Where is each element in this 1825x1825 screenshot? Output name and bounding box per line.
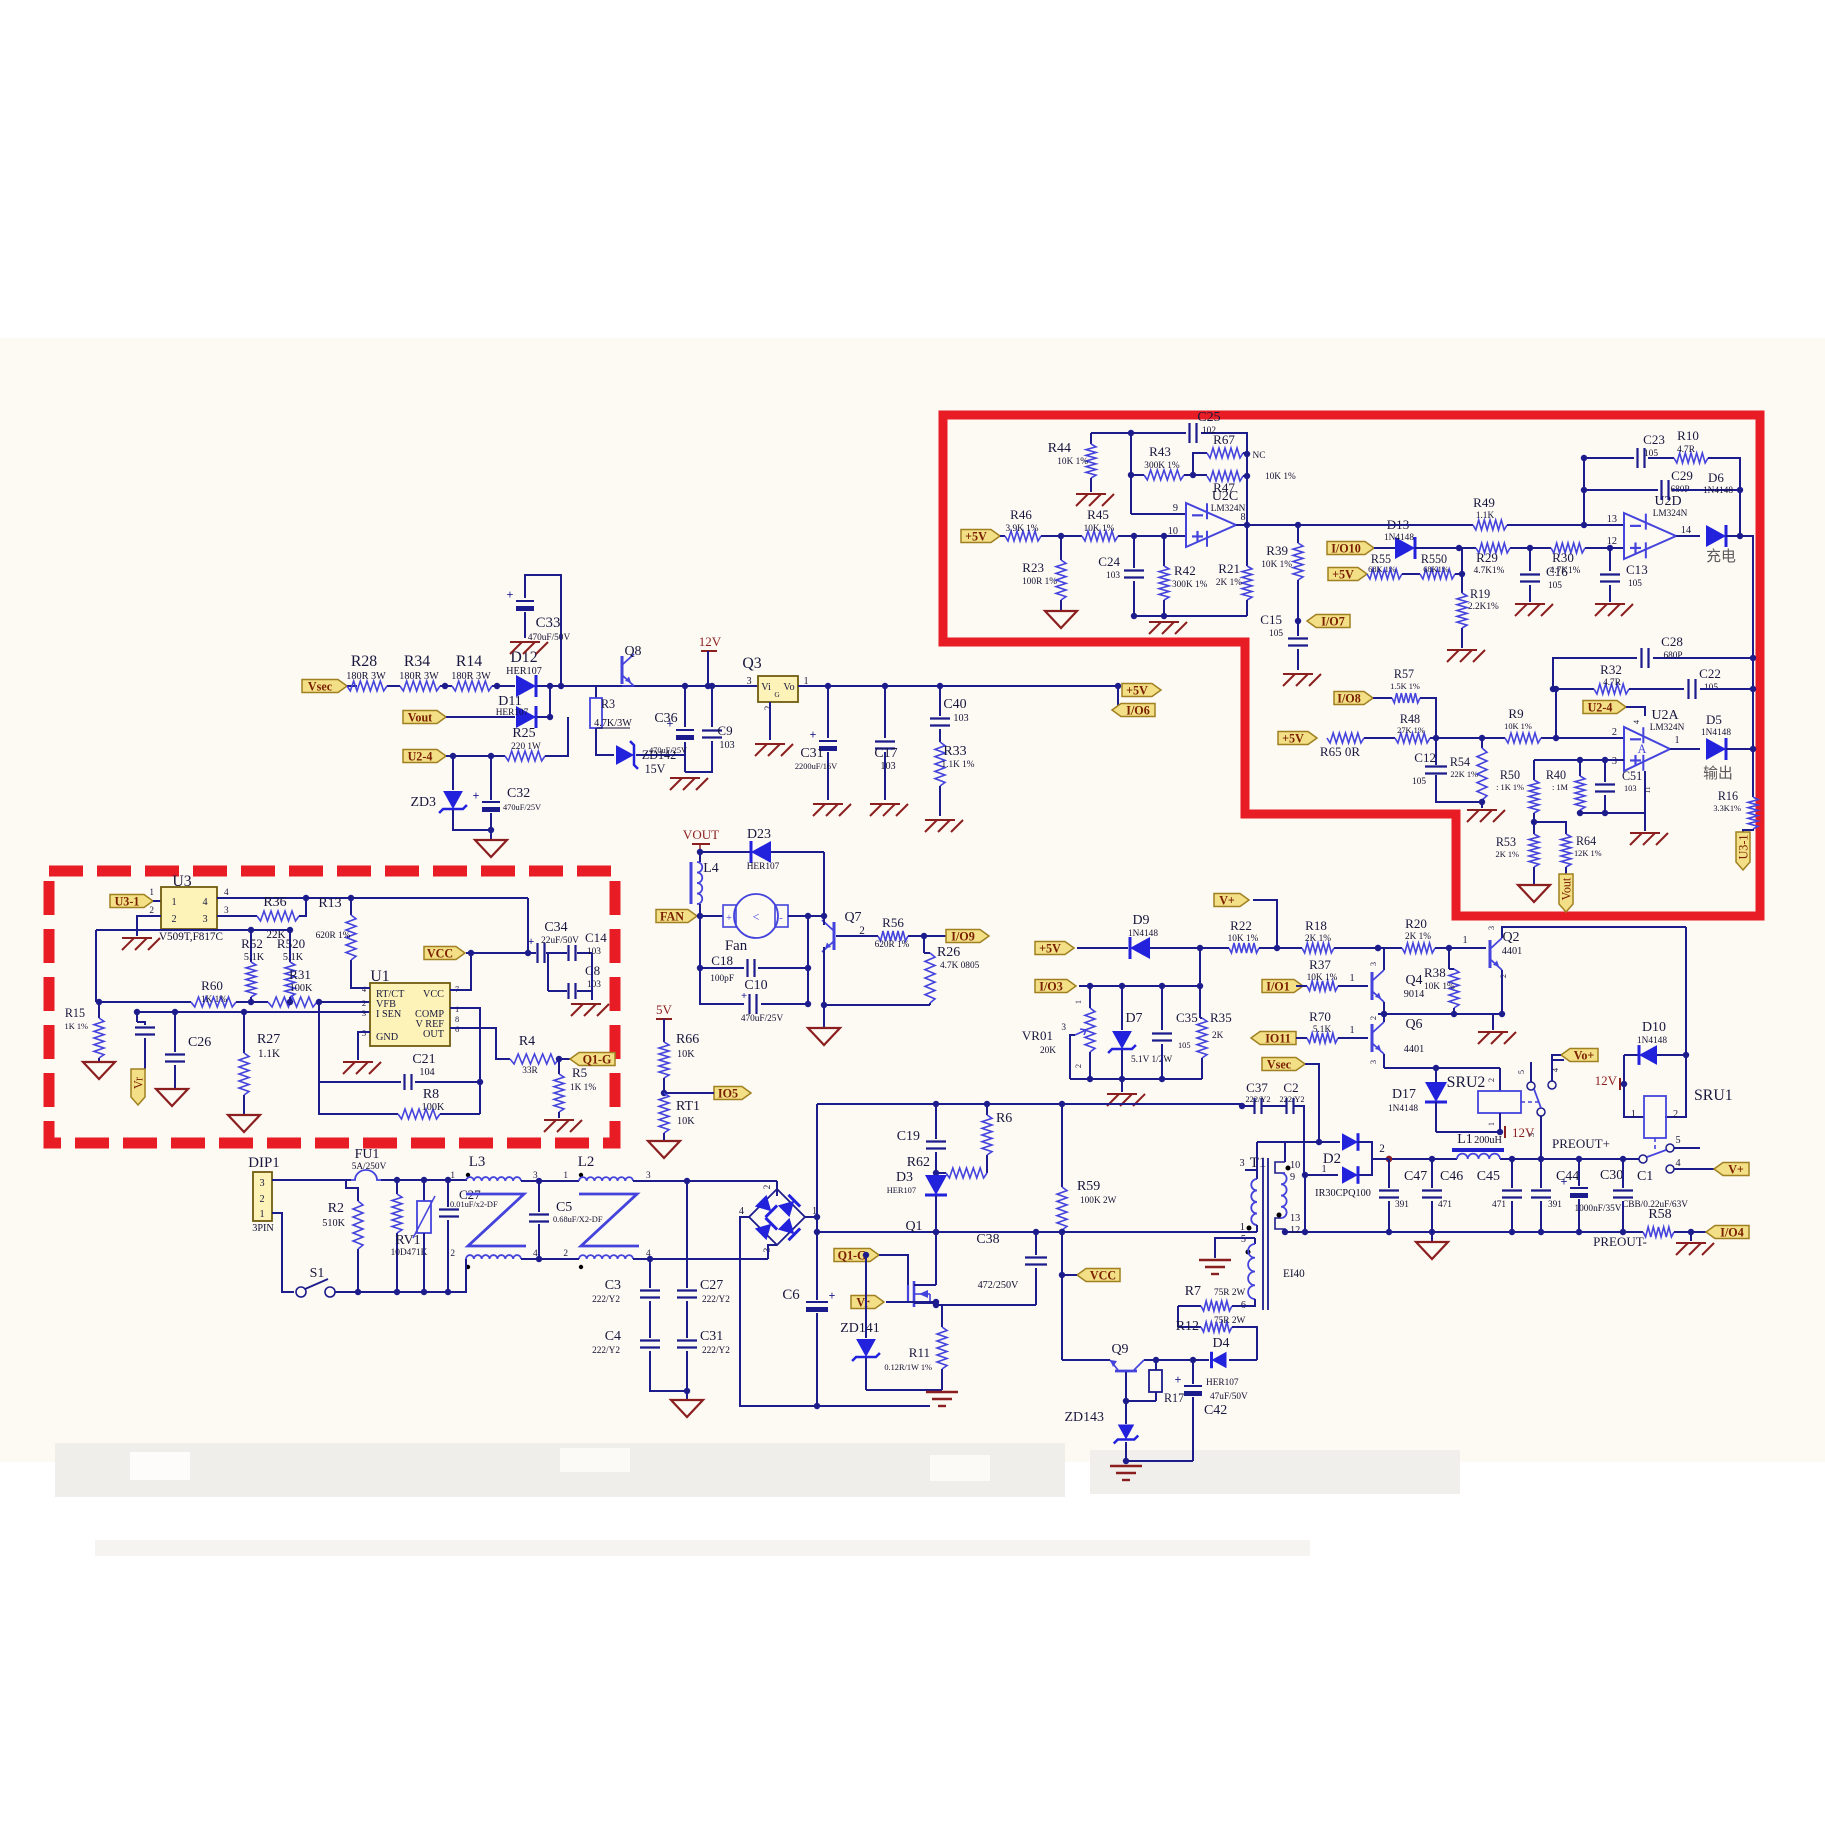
- svg-text:R44: R44: [1048, 441, 1071, 456]
- svg-text:R70: R70: [1309, 1009, 1331, 1024]
- svg-text:472/250V: 472/250V: [978, 1280, 1019, 1291]
- svg-text:IO5: IO5: [718, 1087, 738, 1101]
- svg-text:VCC: VCC: [1090, 1269, 1116, 1283]
- svg-text:11: 11: [1643, 786, 1652, 793]
- svg-text:Q3: Q3: [742, 655, 761, 672]
- svg-text:C25: C25: [1197, 410, 1220, 425]
- svg-text:2.2K1%: 2.2K1%: [1468, 602, 1499, 612]
- svg-text:12: 12: [1290, 1225, 1300, 1236]
- svg-text:R27: R27: [257, 1032, 280, 1047]
- svg-text:+5V: +5V: [1126, 684, 1148, 698]
- svg-text:+: +: [507, 588, 514, 602]
- svg-text:U2-4: U2-4: [1588, 701, 1613, 715]
- svg-text:FAN: FAN: [660, 910, 684, 924]
- svg-text:1: 1: [1074, 1000, 1083, 1004]
- svg-text:R5: R5: [572, 1065, 587, 1080]
- svg-text:C29: C29: [1671, 468, 1693, 483]
- svg-text:R2: R2: [328, 1201, 344, 1216]
- svg-text:C36: C36: [654, 711, 677, 726]
- svg-text:C31: C31: [700, 1329, 723, 1344]
- svg-text:10K 1%: 10K 1%: [1307, 973, 1338, 983]
- svg-text:3: 3: [1369, 1060, 1378, 1064]
- svg-text:C23: C23: [1643, 432, 1665, 447]
- svg-text:1N4148: 1N4148: [1637, 1036, 1667, 1046]
- svg-text:I SEN: I SEN: [376, 1009, 402, 1020]
- svg-text:R6: R6: [996, 1111, 1012, 1126]
- svg-text:R32: R32: [1600, 662, 1622, 677]
- svg-text:R21: R21: [1218, 561, 1240, 576]
- svg-text:R33: R33: [943, 744, 966, 759]
- svg-text:10: 10: [1290, 1160, 1300, 1171]
- svg-text:V509T,F817C: V509T,F817C: [159, 931, 223, 943]
- svg-text:C21: C21: [412, 1052, 435, 1067]
- svg-text:DIP1: DIP1: [248, 1155, 279, 1171]
- svg-text:R29: R29: [1476, 550, 1498, 565]
- svg-text:C4: C4: [605, 1329, 621, 1344]
- svg-text:D4: D4: [1212, 1336, 1229, 1351]
- svg-text:VCC: VCC: [427, 947, 453, 961]
- svg-text:R3: R3: [601, 697, 615, 711]
- svg-text:105: 105: [1628, 579, 1642, 589]
- svg-text:3: 3: [259, 1178, 264, 1189]
- svg-text:ZD3: ZD3: [410, 795, 436, 810]
- svg-text:0.12R/1W 1%: 0.12R/1W 1%: [884, 1363, 932, 1372]
- svg-text:VCC: VCC: [423, 989, 444, 1000]
- svg-text:105: 105: [1412, 777, 1426, 787]
- svg-text:10K: 10K: [677, 1049, 695, 1060]
- svg-text:I/O6: I/O6: [1126, 704, 1150, 718]
- svg-text:5V: 5V: [656, 1002, 673, 1017]
- svg-text:ZD143: ZD143: [1065, 1410, 1105, 1425]
- svg-text:SRU1: SRU1: [1694, 1087, 1733, 1104]
- svg-text:68K 1%: 68K 1%: [1368, 565, 1396, 574]
- svg-text:C6: C6: [782, 1287, 799, 1303]
- svg-text:R8: R8: [423, 1087, 439, 1102]
- svg-text:680P: 680P: [1663, 651, 1682, 661]
- svg-text:R46: R46: [1010, 507, 1032, 522]
- svg-text:Vout: Vout: [408, 711, 432, 725]
- svg-text:+5V: +5V: [1282, 732, 1304, 746]
- svg-text:R16: R16: [1718, 789, 1738, 803]
- svg-text:R50: R50: [1500, 768, 1520, 782]
- svg-text:5: 5: [362, 1029, 366, 1038]
- svg-text:1N4148: 1N4148: [1388, 1104, 1418, 1114]
- svg-text:C42: C42: [1204, 1403, 1227, 1418]
- svg-text:1K 1%: 1K 1%: [201, 995, 227, 1005]
- svg-text:100K: 100K: [422, 1102, 445, 1113]
- svg-text:R35: R35: [1210, 1010, 1232, 1025]
- svg-text:I/O8: I/O8: [1337, 692, 1361, 706]
- svg-text:10K: 10K: [677, 1116, 695, 1127]
- svg-text:5: 5: [1517, 1070, 1526, 1074]
- svg-text:3: 3: [1487, 926, 1496, 930]
- svg-text:1.1K: 1.1K: [258, 1048, 280, 1060]
- svg-text:R60: R60: [201, 978, 223, 993]
- svg-text:2: 2: [171, 914, 176, 925]
- svg-text:NC: NC: [1253, 451, 1266, 461]
- svg-text:R57: R57: [1394, 667, 1414, 681]
- svg-text:C30: C30: [1600, 1168, 1623, 1183]
- svg-text:RV1: RV1: [395, 1233, 420, 1248]
- svg-text:Q1-G: Q1-G: [838, 1249, 867, 1263]
- svg-text:9: 9: [1173, 503, 1178, 514]
- svg-text:U3-1: U3-1: [115, 895, 140, 909]
- svg-text:C1: C1: [1637, 1169, 1653, 1184]
- svg-text:C5: C5: [556, 1200, 572, 1215]
- svg-text:2: 2: [1612, 727, 1617, 738]
- svg-text:391: 391: [1548, 1200, 1562, 1210]
- svg-text:HER107: HER107: [1206, 1378, 1239, 1388]
- svg-text:D23: D23: [747, 827, 771, 842]
- svg-text:4401: 4401: [1404, 1044, 1424, 1055]
- svg-text:1: 1: [563, 1171, 568, 1181]
- svg-text:I/O1: I/O1: [1266, 980, 1290, 994]
- svg-text:R55: R55: [1371, 552, 1391, 566]
- svg-text:510K: 510K: [322, 1218, 345, 1229]
- svg-text:R34: R34: [404, 653, 430, 670]
- svg-text:1N4148: 1N4148: [1128, 929, 1158, 939]
- svg-text:D3: D3: [896, 1170, 913, 1185]
- svg-text:I/O3: I/O3: [1039, 980, 1063, 994]
- svg-text:300K 1%: 300K 1%: [1172, 580, 1208, 590]
- svg-text:2200uF/16V: 2200uF/16V: [795, 762, 837, 771]
- svg-text:103: 103: [719, 740, 734, 751]
- svg-text:12V: 12V: [699, 634, 722, 649]
- svg-text:R17: R17: [1164, 1391, 1184, 1405]
- svg-text:620R 1%: 620R 1%: [875, 940, 910, 950]
- svg-text:471: 471: [1438, 1200, 1452, 1210]
- svg-text:R67: R67: [1213, 432, 1235, 447]
- svg-text:Q9: Q9: [1111, 1342, 1128, 1357]
- svg-text:1: 1: [455, 1005, 459, 1014]
- svg-text:105: 105: [1269, 629, 1283, 639]
- svg-text:R52: R52: [241, 936, 263, 951]
- svg-text:3: 3: [1612, 756, 1617, 767]
- svg-text:3: 3: [224, 906, 229, 916]
- svg-text:C46: C46: [1440, 1169, 1463, 1184]
- svg-text:+: +: [473, 789, 480, 803]
- svg-text:22K 1%: 22K 1%: [1450, 770, 1478, 779]
- svg-text:103: 103: [1106, 571, 1120, 581]
- svg-text:1: 1: [1349, 973, 1354, 984]
- svg-text:0.68uF/X2-DF: 0.68uF/X2-DF: [553, 1215, 603, 1224]
- svg-text:1: 1: [149, 888, 154, 898]
- svg-text:R14: R14: [456, 653, 482, 670]
- svg-text:R31: R31: [289, 967, 311, 982]
- svg-text:Q6: Q6: [1405, 1017, 1422, 1032]
- svg-text:300K 1%: 300K 1%: [1144, 461, 1180, 471]
- svg-text:R13: R13: [318, 896, 341, 911]
- svg-text:13: 13: [1290, 1213, 1300, 1224]
- svg-text:OUT: OUT: [423, 1029, 445, 1040]
- svg-text:180R 3W: 180R 3W: [346, 671, 386, 682]
- svg-text:IO11: IO11: [1265, 1032, 1291, 1046]
- svg-text:R26: R26: [937, 945, 960, 960]
- svg-text:1.1K 1%: 1.1K 1%: [941, 760, 974, 770]
- svg-text:: 1K 1%: : 1K 1%: [1496, 783, 1524, 792]
- svg-text:G: G: [774, 690, 780, 699]
- svg-text:Q4: Q4: [1405, 973, 1422, 988]
- svg-text:HER107: HER107: [506, 666, 542, 677]
- svg-text:R59: R59: [1077, 1179, 1100, 1194]
- svg-text:10K 1%: 10K 1%: [1265, 472, 1296, 482]
- svg-text:2: 2: [1673, 1109, 1678, 1120]
- svg-text:R45: R45: [1087, 507, 1109, 522]
- svg-text:1: 1: [1674, 735, 1679, 746]
- svg-text:10K 1%: 10K 1%: [1084, 524, 1115, 534]
- svg-text:9: 9: [1290, 1172, 1295, 1183]
- svg-text:C26: C26: [188, 1035, 211, 1050]
- svg-text:LM324N: LM324N: [1650, 723, 1685, 733]
- svg-text:2K 1%: 2K 1%: [1216, 578, 1242, 588]
- svg-text:14: 14: [1681, 525, 1691, 536]
- svg-text:2: 2: [1074, 1064, 1083, 1068]
- svg-text:222/Y2: 222/Y2: [592, 1346, 620, 1356]
- svg-text:4.7K1%: 4.7K1%: [1474, 566, 1505, 576]
- svg-text:R56: R56: [882, 915, 904, 930]
- svg-text:103: 103: [587, 980, 601, 990]
- svg-text:3: 3: [1061, 1023, 1066, 1033]
- svg-text:C38: C38: [976, 1232, 999, 1247]
- svg-text:HER107: HER107: [887, 1186, 916, 1195]
- svg-text:PREOUT+: PREOUT+: [1552, 1136, 1610, 1151]
- svg-text:C34: C34: [544, 920, 567, 935]
- svg-text:C13: C13: [1626, 562, 1648, 577]
- svg-text:C3: C3: [605, 1278, 621, 1293]
- svg-text:1: 1: [171, 897, 176, 908]
- svg-text:10K 1%: 10K 1%: [1228, 934, 1259, 944]
- svg-text:C22: C22: [1699, 666, 1721, 681]
- svg-text:D10: D10: [1642, 1020, 1666, 1035]
- svg-text:75R 2W: 75R 2W: [1214, 1316, 1245, 1326]
- svg-text:1: 1: [1462, 935, 1467, 946]
- svg-text:R66: R66: [676, 1032, 699, 1047]
- svg-text:5: 5: [1241, 1234, 1246, 1245]
- svg-text:3PIN: 3PIN: [252, 1223, 274, 1234]
- svg-text:R9: R9: [1508, 706, 1523, 721]
- svg-text:10D471K: 10D471K: [391, 1248, 428, 1258]
- svg-text:1000nF/35V: 1000nF/35V: [1574, 1204, 1621, 1214]
- svg-text:+: +: [1175, 1373, 1182, 1387]
- svg-text:470uF/25V: 470uF/25V: [741, 1014, 784, 1024]
- svg-text:R48: R48: [1400, 712, 1420, 726]
- svg-text:Q1: Q1: [905, 1219, 922, 1234]
- svg-text:I/O7: I/O7: [1321, 615, 1345, 629]
- svg-text:3: 3: [362, 1009, 366, 1018]
- svg-text:180R 3W: 180R 3W: [399, 671, 439, 682]
- svg-text:: 1M: : 1M: [1552, 783, 1569, 792]
- svg-text:L1: L1: [1457, 1132, 1473, 1147]
- svg-text:222/Y2: 222/Y2: [592, 1295, 620, 1305]
- svg-text:4: 4: [1675, 1158, 1680, 1169]
- svg-text:I/O4: I/O4: [1720, 1226, 1744, 1240]
- svg-text:8: 8: [1240, 512, 1245, 523]
- svg-text:13: 13: [1607, 514, 1617, 525]
- svg-text:3: 3: [202, 914, 207, 925]
- svg-text:+: +: [810, 728, 817, 742]
- svg-text:2: 2: [563, 1249, 568, 1259]
- svg-text:C45: C45: [1477, 1169, 1500, 1184]
- svg-text:L3: L3: [469, 1154, 486, 1170]
- svg-text:4.7K 0805: 4.7K 0805: [940, 961, 980, 971]
- svg-text:222/Y2: 222/Y2: [1245, 1095, 1270, 1104]
- svg-text:Q7: Q7: [844, 910, 861, 925]
- svg-text:0.01uF/x2-DF: 0.01uF/x2-DF: [450, 1200, 498, 1209]
- svg-text:33R: 33R: [522, 1066, 538, 1076]
- svg-text:R54: R54: [1450, 755, 1470, 769]
- svg-text:222/Y2: 222/Y2: [1279, 1095, 1304, 1104]
- svg-text:2K 1%: 2K 1%: [1496, 850, 1519, 859]
- svg-text:R4: R4: [519, 1034, 535, 1049]
- svg-text:C16: C16: [1546, 564, 1568, 579]
- svg-text:6: 6: [455, 1025, 459, 1034]
- svg-text:5: 5: [1675, 1135, 1680, 1146]
- svg-text:C2: C2: [1283, 1080, 1298, 1095]
- svg-text:R23: R23: [1022, 560, 1044, 575]
- svg-text:1: 1: [1321, 1164, 1326, 1175]
- svg-text:4.7R: 4.7R: [1603, 678, 1622, 688]
- svg-text:C47: C47: [1404, 1169, 1427, 1184]
- svg-text:输出: 输出: [1703, 765, 1733, 782]
- svg-text:R18: R18: [1305, 918, 1327, 933]
- svg-text:3.3K1%: 3.3K1%: [1713, 804, 1741, 813]
- svg-text:Vr: Vr: [856, 1296, 870, 1310]
- svg-text:5.1K: 5.1K: [283, 952, 304, 963]
- svg-text:200uH: 200uH: [1474, 1135, 1502, 1146]
- svg-text:3: 3: [1239, 1158, 1244, 1169]
- svg-text:C31: C31: [800, 746, 823, 761]
- svg-text:2: 2: [362, 999, 366, 1008]
- svg-text:R36: R36: [263, 895, 286, 910]
- svg-text:U2C: U2C: [1212, 489, 1238, 504]
- svg-text:2K: 2K: [1212, 1031, 1224, 1041]
- svg-text:2: 2: [259, 1194, 264, 1205]
- svg-text:D11: D11: [498, 694, 522, 709]
- svg-text:620R 1%: 620R 1%: [316, 931, 351, 941]
- svg-text:1: 1: [1349, 1025, 1354, 1036]
- svg-text:3: 3: [1527, 1133, 1536, 1137]
- svg-text:I/O10: I/O10: [1331, 542, 1361, 556]
- svg-text:22uF/50V: 22uF/50V: [541, 936, 579, 946]
- svg-text:1N4148: 1N4148: [1703, 486, 1733, 496]
- svg-text:100R 1%: 100R 1%: [1022, 577, 1057, 587]
- svg-text:R49: R49: [1473, 495, 1495, 510]
- svg-text:充电: 充电: [1706, 548, 1736, 565]
- svg-text:3: 3: [1369, 962, 1378, 966]
- svg-text:470uF/25V: 470uF/25V: [503, 803, 541, 812]
- svg-text:2: 2: [1369, 1016, 1378, 1020]
- svg-text:5.1K: 5.1K: [244, 952, 265, 963]
- svg-text:1N4148: 1N4148: [1701, 728, 1731, 738]
- svg-text:+5V: +5V: [1039, 942, 1061, 956]
- svg-text:D7: D7: [1125, 1011, 1142, 1026]
- svg-text:R520: R520: [277, 936, 306, 951]
- svg-text:103: 103: [1624, 784, 1637, 793]
- svg-text:4: 4: [739, 1206, 744, 1217]
- svg-text:R7: R7: [1185, 1284, 1201, 1299]
- svg-text:R53: R53: [1496, 835, 1516, 849]
- svg-text:Vi: Vi: [761, 682, 771, 693]
- svg-text:15V: 15V: [645, 762, 666, 776]
- svg-text:10K 1%: 10K 1%: [1057, 457, 1088, 467]
- svg-text:12V: 12V: [1595, 1073, 1618, 1088]
- svg-text:VOUT: VOUT: [683, 827, 719, 842]
- svg-text:+: +: [528, 936, 534, 948]
- svg-text:1K 1%: 1K 1%: [570, 1083, 596, 1093]
- svg-text:105: 105: [1178, 1041, 1191, 1050]
- svg-text:HER107: HER107: [747, 862, 780, 872]
- svg-text:V+: V+: [1219, 894, 1235, 908]
- svg-text:12: 12: [1607, 536, 1617, 547]
- svg-text:1N4148: 1N4148: [1384, 533, 1414, 543]
- svg-text:10K 1%: 10K 1%: [1504, 722, 1532, 731]
- svg-text:1: 1: [1631, 1109, 1636, 1120]
- svg-text:105: 105: [1548, 581, 1562, 591]
- svg-text:5.1V 1/2W: 5.1V 1/2W: [1131, 1055, 1172, 1065]
- svg-text:R28: R28: [351, 653, 377, 670]
- svg-text:C24: C24: [1098, 554, 1120, 569]
- svg-text:C10: C10: [744, 978, 767, 993]
- svg-text:100K: 100K: [290, 983, 313, 994]
- svg-text:100pF: 100pF: [710, 974, 734, 984]
- svg-text:4401: 4401: [1502, 946, 1522, 957]
- svg-text:R15: R15: [65, 1006, 85, 1020]
- svg-text:27K 1%: 27K 1%: [1397, 726, 1425, 735]
- svg-text:4.7K/3W: 4.7K/3W: [594, 718, 632, 729]
- svg-text:+5V: +5V: [1332, 568, 1354, 582]
- svg-text:R12: R12: [1176, 1319, 1199, 1334]
- svg-text:PREOUT-: PREOUT-: [1593, 1234, 1647, 1249]
- svg-text:R30: R30: [1552, 550, 1574, 565]
- svg-text:V+: V+: [1728, 1163, 1744, 1177]
- svg-text:SRU2: SRU2: [1447, 1074, 1486, 1091]
- svg-text:C14: C14: [585, 930, 607, 945]
- svg-text:103: 103: [953, 713, 968, 724]
- svg-text:IR30CPQ100: IR30CPQ100: [1315, 1188, 1371, 1199]
- svg-text:C12: C12: [1414, 750, 1436, 765]
- svg-text:C15: C15: [1260, 612, 1282, 627]
- svg-text:Q2: Q2: [1502, 930, 1519, 945]
- svg-text:+: +: [1561, 1175, 1568, 1189]
- svg-text:ZD141: ZD141: [840, 1321, 880, 1336]
- svg-text:10: 10: [1168, 526, 1178, 537]
- svg-text:103: 103: [587, 947, 601, 957]
- svg-text:LM324N: LM324N: [1653, 509, 1688, 519]
- svg-text:R38: R38: [1424, 965, 1446, 980]
- svg-text:Vr: Vr: [132, 1077, 146, 1089]
- svg-text:Q8: Q8: [624, 644, 641, 659]
- svg-text:C32: C32: [507, 786, 530, 801]
- svg-text:391: 391: [1395, 1200, 1409, 1210]
- svg-text:C33: C33: [536, 615, 561, 631]
- svg-text:R43: R43: [1149, 444, 1171, 459]
- svg-text:10K 1%: 10K 1%: [1424, 982, 1455, 992]
- svg-text:RT1: RT1: [676, 1099, 700, 1114]
- svg-text:S1: S1: [310, 1266, 325, 1281]
- svg-text:12K 1%: 12K 1%: [1574, 849, 1602, 858]
- svg-text:4: 4: [202, 897, 207, 908]
- svg-text:D6: D6: [1708, 470, 1724, 485]
- svg-text:3: 3: [746, 676, 751, 687]
- svg-text:2K 1%: 2K 1%: [1405, 932, 1431, 942]
- svg-text:R62: R62: [907, 1155, 930, 1170]
- svg-text:C28: C28: [1661, 634, 1683, 649]
- svg-text:R10: R10: [1677, 428, 1699, 443]
- svg-text:1: 1: [259, 1209, 264, 1220]
- svg-text:75R 2W: 75R 2W: [1214, 1288, 1245, 1298]
- svg-text:R20: R20: [1405, 916, 1427, 931]
- svg-text:8: 8: [455, 1015, 459, 1024]
